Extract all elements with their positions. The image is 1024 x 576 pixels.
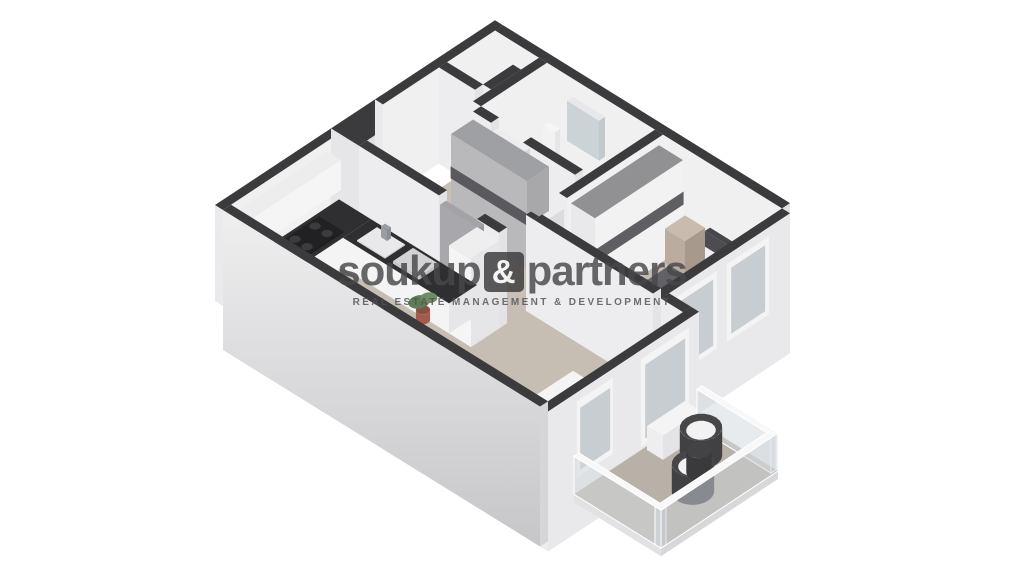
- burner-4: [321, 230, 332, 237]
- burner-3: [301, 243, 312, 250]
- shapes-root: [215, 20, 790, 556]
- floorplan-render: soukup & partners REAL ESTATE MANAGEMENT…: [0, 0, 1024, 576]
- floorplan-3d-scene: [0, 0, 1024, 576]
